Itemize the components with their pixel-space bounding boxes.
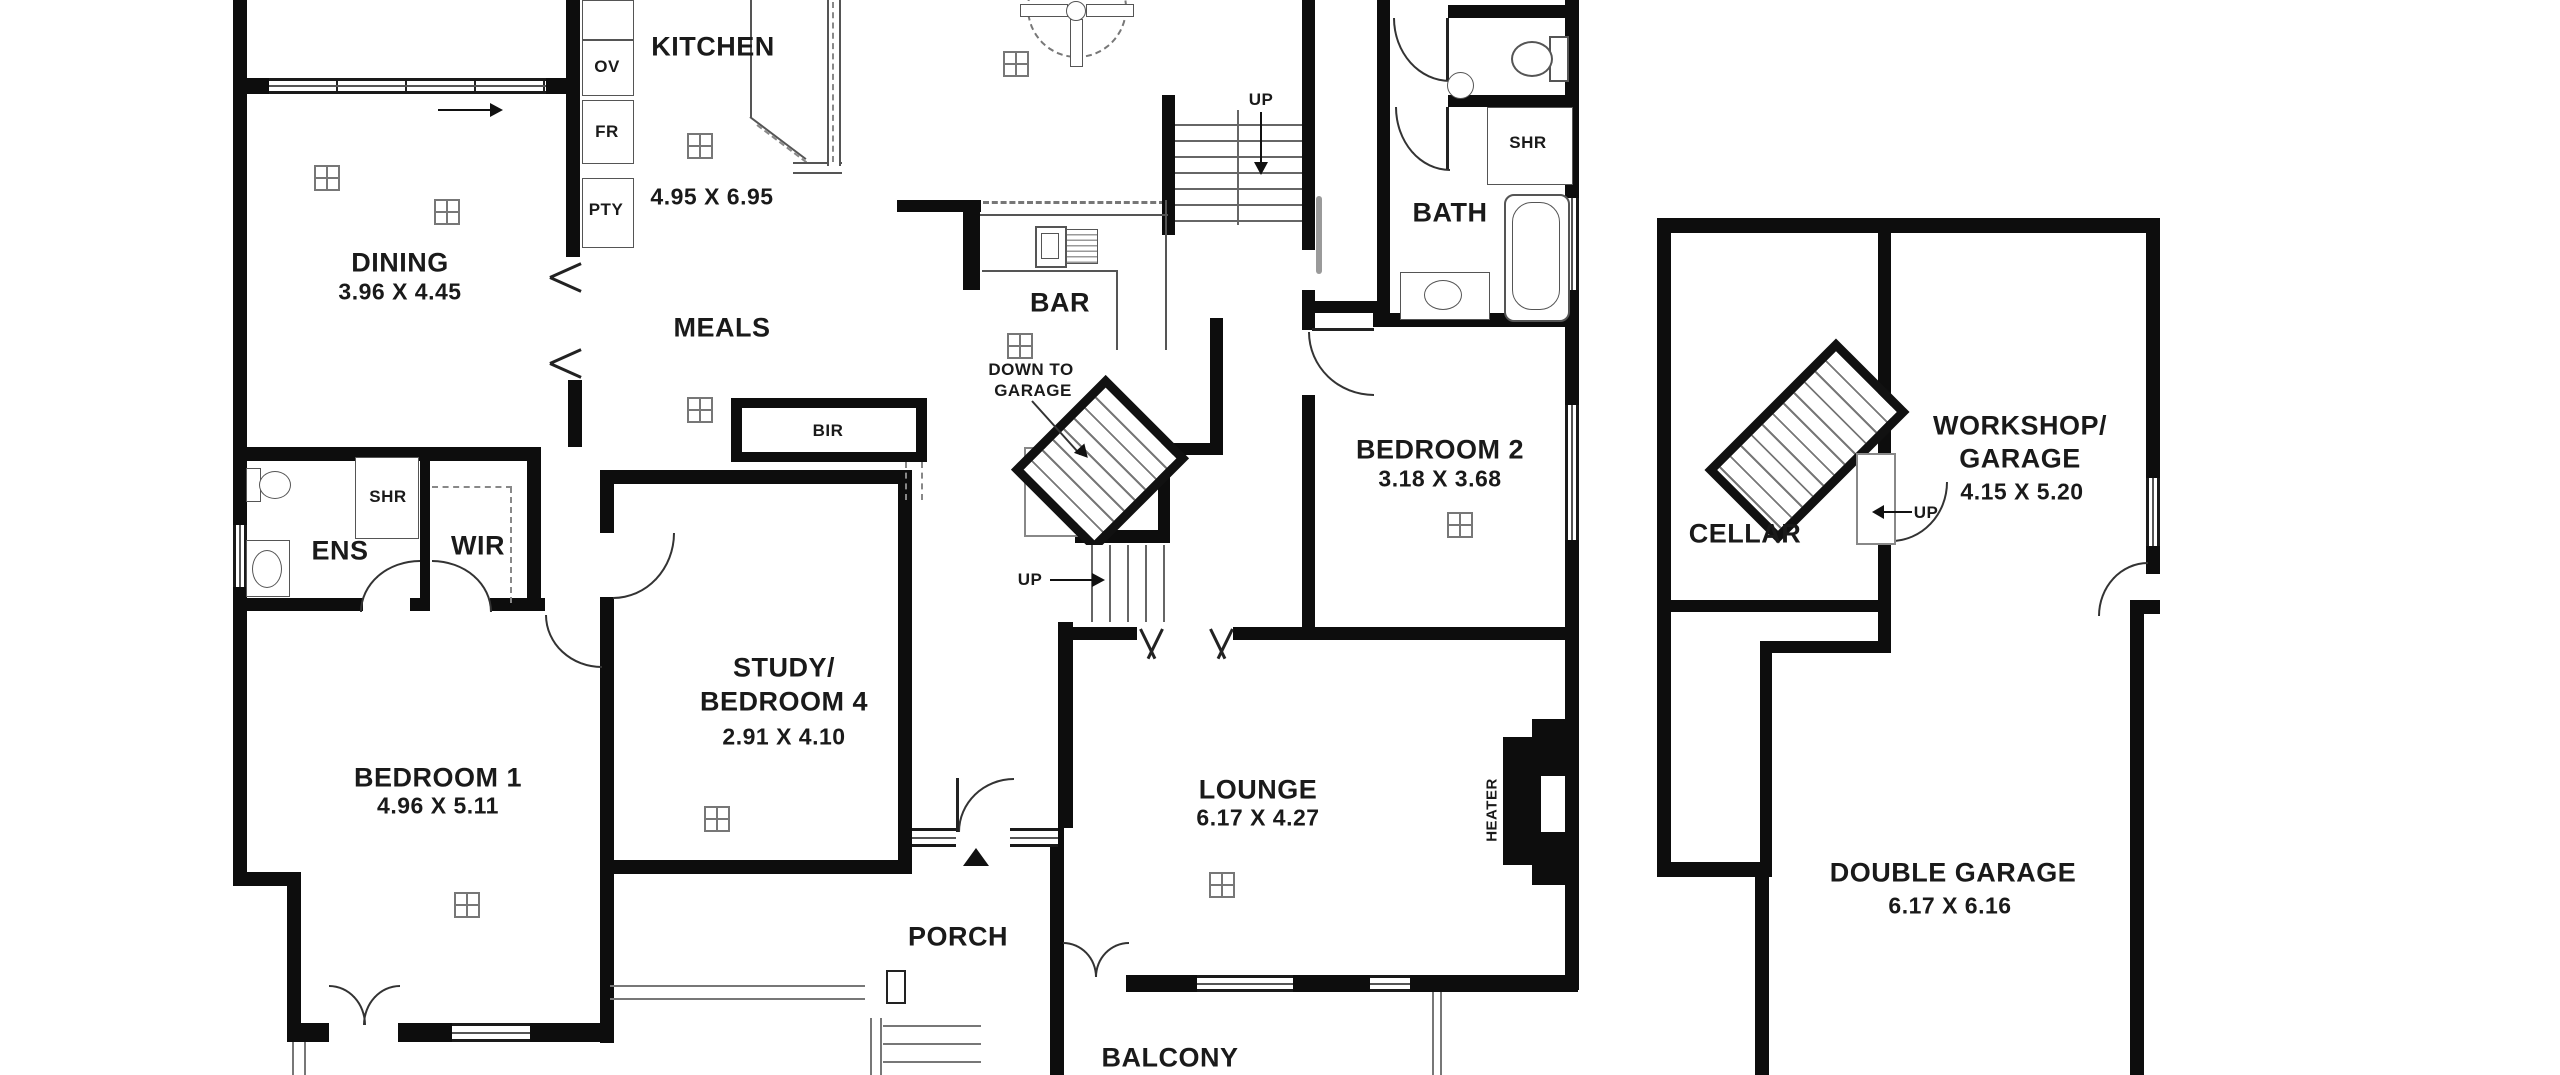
wall — [1210, 318, 1223, 453]
wall — [1126, 975, 1197, 992]
ens-vanity-basin — [252, 550, 282, 588]
label-pantry: PTY — [589, 200, 624, 220]
cellar-arrow-head — [1872, 505, 1884, 519]
room-dims-bedroom2: 3.18 X 3.68 — [1378, 466, 1501, 493]
bar-counter-line — [980, 214, 1168, 216]
wall — [1760, 641, 1891, 653]
wall — [963, 200, 980, 290]
wall — [420, 457, 430, 605]
label-up-entry: UP — [1018, 570, 1043, 590]
opening-chevron — [549, 276, 581, 293]
room-label-bath: BATH — [1413, 198, 1488, 229]
bath-vanity-basin — [1424, 280, 1462, 310]
light-symbol — [314, 165, 340, 191]
door-arc-bedroom1 — [545, 615, 602, 668]
wall — [1657, 862, 1769, 877]
stairs-arrow-head — [1254, 162, 1268, 175]
room-label-cellar: CELLAR — [1689, 519, 1802, 550]
room-label-workshop-2: GARAGE — [1959, 444, 2081, 475]
wall — [1293, 975, 1370, 992]
overhead-cupboard-dashed — [983, 201, 1165, 204]
wall — [2130, 612, 2144, 1075]
wir-dashed-robe — [432, 486, 512, 488]
window — [1565, 405, 1579, 540]
wall — [600, 860, 912, 874]
porch-step-rail — [880, 1018, 882, 1075]
wall — [1377, 0, 1390, 325]
wall — [233, 0, 247, 885]
window — [2146, 478, 2160, 548]
porch-step — [883, 1061, 981, 1063]
wall — [600, 470, 898, 484]
ceiling-fan-blade — [1070, 19, 1083, 67]
heater-block — [1532, 719, 1565, 739]
door-arc-ens — [360, 560, 420, 612]
light-symbol — [704, 806, 730, 832]
window — [1010, 828, 1058, 847]
label-shower-bath: SHR — [1509, 133, 1546, 153]
room-label-kitchen: KITCHEN — [651, 32, 775, 63]
window — [233, 525, 247, 587]
opening-chevron — [549, 362, 581, 379]
kitchen-bench-dashed — [756, 124, 807, 163]
room-label-lounge: LOUNGE — [1199, 775, 1318, 806]
room-label-workshop-1: WORKSHOP/ — [1933, 411, 2107, 442]
room-label-study-2: BEDROOM 4 — [700, 687, 868, 718]
wall — [1760, 641, 1772, 877]
wir-dashed-robe — [510, 487, 512, 603]
veranda-railing — [610, 985, 865, 987]
wall — [1878, 218, 1891, 482]
wall — [568, 380, 582, 447]
label-fridge: FR — [595, 122, 619, 142]
window — [1370, 975, 1410, 992]
floor-plan: KITCHEN 4.95 X 6.95 OV FR PTY DINING 3.9… — [0, 0, 2560, 1075]
ens-toilet-bowl — [259, 471, 291, 499]
room-label-study-1: STUDY/ — [733, 653, 835, 684]
porch-step — [883, 1025, 981, 1027]
door-arc-bedroom1-french-left — [329, 985, 366, 1025]
bathtub-inner — [1512, 202, 1560, 310]
wall — [600, 597, 614, 1043]
appliance-box — [582, 0, 634, 40]
door-arc-bedroom2 — [1308, 332, 1374, 396]
room-dims-dining: 3.96 X 4.45 — [338, 279, 461, 306]
wall — [1302, 301, 1377, 313]
wall — [1448, 5, 1578, 18]
wall — [1302, 0, 1315, 250]
room-dims-workshop: 4.15 X 5.20 — [1960, 479, 2083, 506]
kitchen-bench-dashed — [832, 2, 834, 162]
porch-step-rail — [870, 1018, 872, 1075]
entry-marker-triangle — [963, 848, 989, 866]
wall — [527, 447, 541, 611]
wall — [2146, 546, 2160, 574]
dining-arrow-head — [490, 103, 503, 117]
wc-door-leaf — [1446, 18, 1449, 80]
wall — [287, 1023, 329, 1042]
deck-edge — [304, 1042, 306, 1075]
room-dims-study: 2.91 X 4.10 — [722, 724, 845, 751]
room-label-bar: BAR — [1030, 288, 1090, 319]
room-label-bedroom1: BEDROOM 1 — [354, 763, 522, 794]
door-arc-study — [613, 533, 675, 599]
opening-chevron — [549, 348, 581, 365]
label-oven: OV — [594, 57, 620, 77]
door-arc-bath — [1395, 107, 1450, 171]
window — [912, 828, 956, 847]
heater-block — [1532, 863, 1565, 885]
door-arc-workshop — [2098, 562, 2148, 616]
room-dims-bedroom1: 4.96 X 5.11 — [377, 793, 499, 820]
wall — [1302, 395, 1315, 640]
cellar-stairs-landing — [1856, 453, 1896, 545]
wall — [1058, 622, 1073, 828]
heater-inset — [1541, 776, 1565, 832]
door-arc-lounge-french-right — [1095, 942, 1129, 977]
room-label-dining: DINING — [351, 248, 449, 279]
light-symbol — [687, 133, 713, 159]
room-label-ens: ENS — [311, 536, 368, 567]
label-down-to-garage-1: DOWN TO — [988, 360, 1073, 380]
room-label-meals: MEALS — [674, 313, 771, 344]
wall — [233, 78, 269, 94]
wall — [287, 872, 301, 1042]
stairs-up-entry — [1075, 545, 1168, 622]
room-dims-lounge: 6.17 X 4.27 — [1196, 805, 1319, 832]
room-label-bedroom2: BEDROOM 2 — [1356, 435, 1524, 466]
door-arc-front-door — [958, 778, 1014, 832]
wall — [1050, 828, 1064, 1075]
wall — [566, 0, 580, 257]
light-symbol — [1007, 333, 1033, 359]
ceiling-fan-blade — [1020, 4, 1068, 17]
label-up-cellar: UP — [1914, 503, 1939, 523]
label-built-in-robe: BIR — [813, 421, 844, 441]
room-dims-double-garage: 6.17 X 6.16 — [1888, 893, 2011, 920]
room-label-balcony: BALCONY — [1102, 1043, 1239, 1074]
entry-arrow-head — [1092, 573, 1105, 587]
door-arc-bedroom1-french-right — [363, 985, 400, 1025]
wall — [1233, 627, 1578, 640]
wall — [2146, 218, 2160, 480]
veranda-railing — [610, 998, 865, 1000]
opening-chevron — [549, 262, 581, 279]
toilet-bowl — [1511, 41, 1553, 77]
wall — [233, 598, 363, 611]
wall — [1657, 218, 2160, 233]
light-symbol — [1209, 872, 1235, 898]
wall — [1657, 218, 1671, 877]
light-symbol — [1447, 512, 1473, 538]
light-symbol — [434, 199, 460, 225]
corner-basin — [1447, 72, 1474, 99]
robe-dashed-line — [921, 462, 923, 500]
balcony-edge — [1440, 992, 1442, 1075]
wall — [600, 470, 614, 533]
wall — [490, 598, 545, 611]
robe-dashed-line — [905, 462, 907, 500]
wall — [1657, 600, 1891, 612]
light-symbol — [454, 892, 480, 918]
entry-arrow-line — [1050, 579, 1092, 581]
wall — [1073, 627, 1137, 640]
bar-counter-line — [1116, 270, 1118, 350]
light-symbol — [1003, 51, 1029, 77]
cellar-arrow-line — [1884, 511, 1912, 513]
pocket-door — [1316, 196, 1322, 274]
front-door-leaf — [956, 778, 959, 832]
bar-counter-line — [1165, 200, 1167, 350]
wall — [1410, 975, 1578, 992]
light-symbol — [687, 397, 713, 423]
porch-step — [883, 1043, 981, 1045]
bath-door-leaf — [1446, 107, 1449, 169]
ceiling-fan-hub — [1066, 1, 1086, 21]
room-label-porch: PORCH — [908, 922, 1008, 953]
room-label-double-garage: DOUBLE GARAGE — [1830, 858, 2077, 889]
label-shower-ens: SHR — [369, 487, 406, 507]
door-arc-lounge-french-left — [1063, 942, 1097, 977]
room-label-wir: WIR — [451, 531, 505, 562]
window — [1197, 975, 1293, 992]
bedroom2-door-leaf — [1312, 328, 1374, 331]
ceiling-fan-blade — [1086, 4, 1134, 17]
bar-sink-bowl — [1041, 233, 1059, 259]
wall — [398, 1023, 454, 1042]
label-down-to-garage-2: GARAGE — [994, 381, 1072, 401]
kitchen-bench-edge — [749, 116, 806, 160]
door-arc-wc — [1393, 18, 1450, 82]
room-dims-kitchen: 4.95 X 6.95 — [650, 184, 773, 211]
porch-post — [886, 970, 906, 1004]
window — [452, 1023, 530, 1042]
window — [269, 78, 546, 94]
door-arc-wir — [432, 560, 492, 612]
bar-counter-line — [982, 270, 1118, 272]
dining-arrow-line — [438, 109, 490, 111]
stairs-arrow-line — [1260, 112, 1262, 162]
bar-sink-drainer — [1066, 229, 1098, 264]
label-up-main: UP — [1249, 90, 1274, 110]
label-heater: HEATER — [1484, 778, 1501, 842]
wall — [1755, 862, 1769, 1075]
stairs-rail — [1237, 110, 1239, 225]
deck-edge — [292, 1042, 294, 1075]
kitchen-bench-band — [827, 0, 841, 166]
wall — [898, 470, 912, 874]
balcony-edge — [1432, 992, 1434, 1075]
